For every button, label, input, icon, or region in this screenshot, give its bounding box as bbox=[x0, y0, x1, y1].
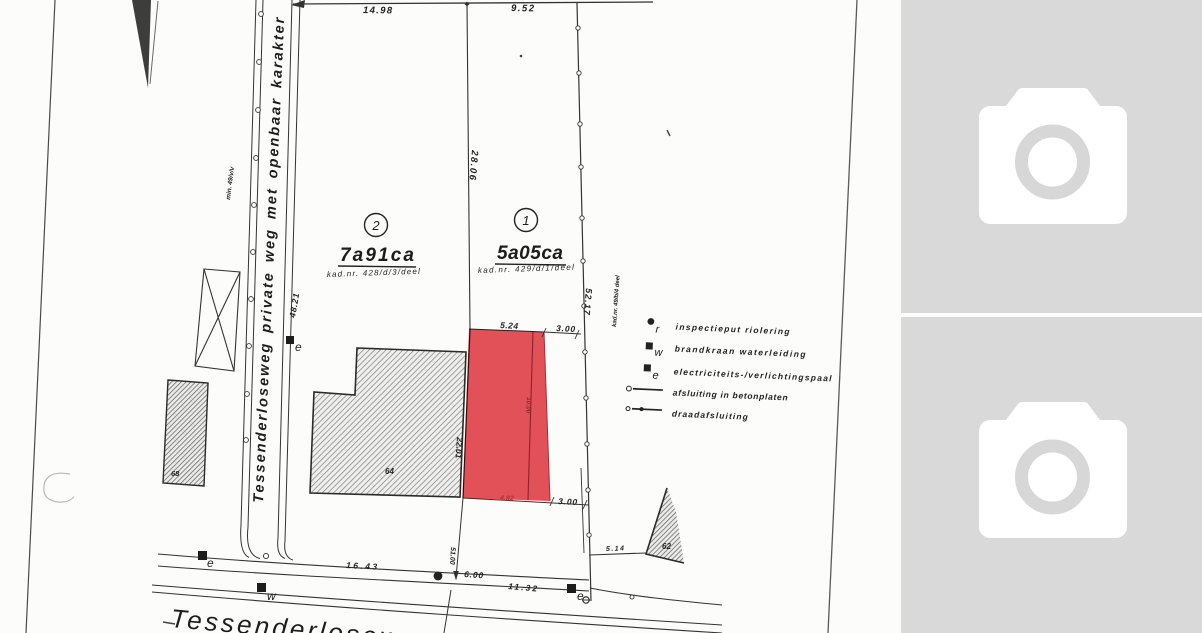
svg-text:3.00: 3.00 bbox=[556, 323, 576, 334]
svg-text:1: 1 bbox=[522, 213, 529, 228]
svg-text:51.00: 51.00 bbox=[448, 547, 456, 565]
svg-text:6.00: 6.00 bbox=[464, 569, 484, 580]
svg-text:4.82: 4.82 bbox=[499, 495, 514, 503]
svg-text:14.98: 14.98 bbox=[363, 5, 393, 17]
svg-text:9.52: 9.52 bbox=[511, 3, 535, 14]
svg-text:62: 62 bbox=[662, 542, 671, 551]
svg-text:2: 2 bbox=[371, 218, 380, 233]
svg-text:10.00: 10.00 bbox=[524, 397, 532, 414]
svg-text:5.24: 5.24 bbox=[500, 320, 519, 331]
svg-text:e: e bbox=[577, 589, 584, 603]
svg-text:22.01: 22.01 bbox=[454, 436, 466, 459]
svg-text:w: w bbox=[267, 589, 277, 603]
svg-text:3.00: 3.00 bbox=[558, 496, 578, 507]
svg-text:5a05ca: 5a05ca bbox=[497, 243, 563, 264]
svg-text:68: 68 bbox=[171, 469, 180, 478]
svg-text:e: e bbox=[295, 340, 302, 354]
svg-text:5.14: 5.14 bbox=[606, 545, 624, 553]
svg-text:e: e bbox=[652, 370, 659, 382]
svg-text:e: e bbox=[207, 556, 214, 570]
svg-text:64: 64 bbox=[385, 467, 394, 476]
